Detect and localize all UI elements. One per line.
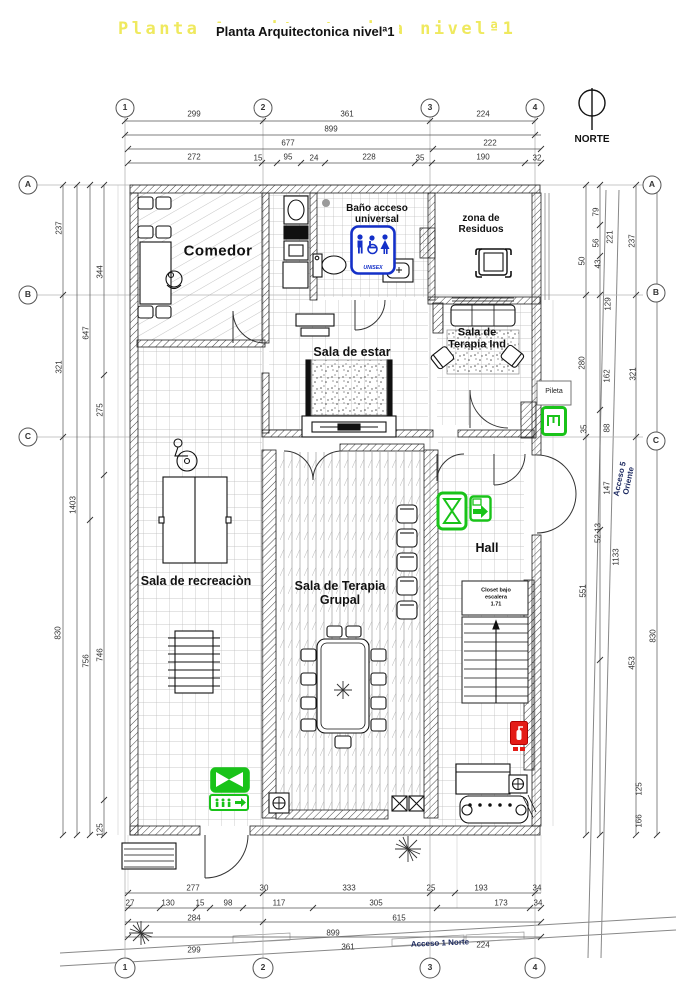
plan-drawing — [0, 0, 680, 986]
evacuation-sign-hall-large — [436, 491, 468, 536]
safety-sign-pileta — [541, 406, 567, 441]
north-label: NORTE — [562, 134, 622, 145]
evacuation-route-icon — [209, 794, 249, 811]
exit-arrow-icon — [469, 495, 492, 522]
unisex-sign-label: UNISEX — [350, 265, 396, 271]
hourglass-exit-icon — [436, 491, 468, 531]
fire-extinguisher-sign — [510, 721, 528, 758]
page-title: Planta Arquitectonica nivelª1 — [211, 23, 399, 40]
north-arrow-icon — [562, 86, 622, 132]
assembly-point-icon — [210, 767, 250, 793]
exit-arrow-sign-hall — [469, 495, 492, 527]
evacuation-route-sign — [209, 794, 249, 816]
shelf-safety-icon — [541, 406, 567, 436]
floor-plan-sheet: Planta Arquitectonica nivelª1 Planta Arq… — [0, 0, 680, 986]
exterior-lines — [545, 193, 549, 300]
fire-extinguisher-icon — [510, 721, 528, 753]
north-indicator: NORTE — [562, 86, 622, 145]
unisex-restroom-sign: UNISEX — [350, 225, 396, 275]
